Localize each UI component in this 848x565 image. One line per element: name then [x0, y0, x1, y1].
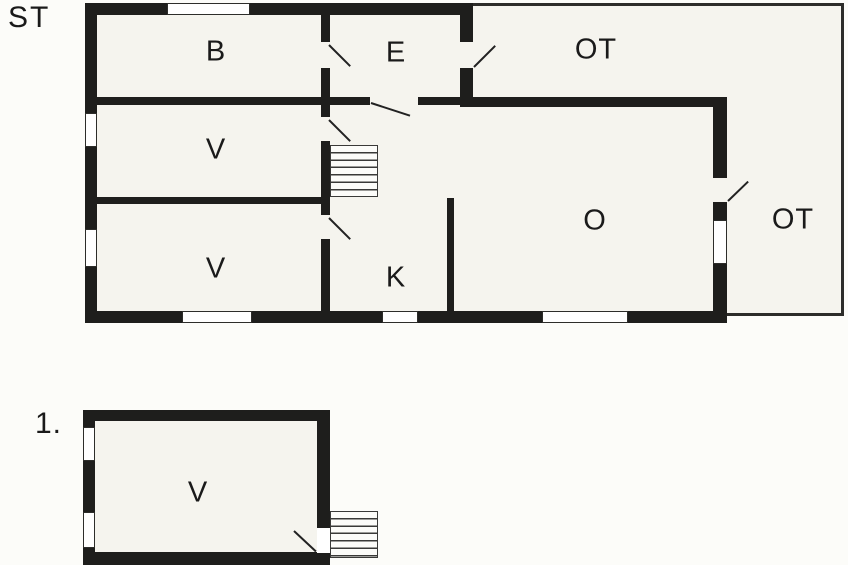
window-bottom-wall-2 — [382, 311, 418, 323]
window-top-wall — [167, 3, 250, 15]
wall-top-first — [83, 410, 330, 421]
wall-right-mid — [713, 202, 727, 220]
room-label-k: K — [386, 264, 406, 293]
room-label-o: O — [583, 207, 607, 236]
wall-top — [85, 3, 473, 15]
wall-eot-seg1 — [460, 3, 473, 42]
wall-bv-divider — [85, 97, 330, 105]
window-bottom-wall-3 — [542, 311, 628, 323]
room-label-v-upper: V — [206, 136, 226, 165]
terrace-boundary-right — [841, 3, 844, 316]
window-left-wall-1 — [85, 113, 97, 147]
wall-ko-divider — [447, 198, 454, 311]
wall-be-seg2 — [321, 68, 330, 117]
window-first-left-2 — [83, 512, 95, 548]
wall-bottom-first — [83, 552, 330, 565]
wall-o-top — [460, 97, 713, 107]
terrace-boundary-top — [473, 3, 843, 6]
wall-right-upper — [713, 97, 727, 178]
wall-be-seg4 — [321, 239, 330, 311]
window-right-wall — [713, 220, 727, 264]
wall-left — [85, 3, 97, 323]
room-label-v-lower: V — [206, 255, 226, 284]
room-label-ot-top: OT — [575, 36, 617, 65]
wall-e-bottom-left — [330, 97, 370, 105]
room-label-v-first: V — [188, 479, 208, 508]
room-label-e: E — [386, 39, 406, 68]
floor-plan-canvas: ST — [0, 0, 848, 565]
room-label-ot-right: OT — [772, 206, 814, 235]
wall-right-first-lower — [317, 553, 330, 565]
wall-right-first-upper — [317, 410, 330, 528]
first-floor-label: 1. — [35, 409, 62, 439]
window-bottom-wall-1 — [182, 311, 252, 323]
room-label-b: B — [206, 38, 226, 67]
stairs-ground — [330, 145, 378, 197]
stairs-first — [330, 511, 378, 558]
wall-be-seg1 — [321, 15, 330, 42]
window-left-wall-2 — [85, 229, 97, 267]
door-gap-first — [317, 528, 330, 553]
terrace-boundary-bottom — [727, 313, 843, 316]
ground-floor-label: ST — [8, 3, 50, 33]
wall-e-bottom-right — [418, 97, 460, 105]
wall-vv-divider — [85, 197, 330, 204]
window-first-left-1 — [83, 427, 95, 461]
wall-right-lower — [713, 264, 727, 311]
